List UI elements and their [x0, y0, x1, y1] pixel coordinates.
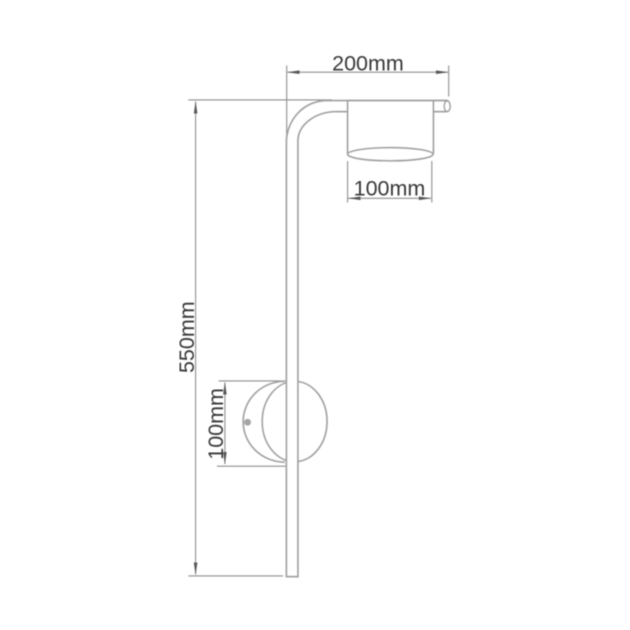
svg-text:200mm: 200mm — [332, 51, 404, 75]
svg-text:550mm: 550mm — [175, 301, 199, 373]
svg-text:100mm: 100mm — [354, 176, 426, 200]
svg-text:100mm: 100mm — [204, 388, 228, 460]
